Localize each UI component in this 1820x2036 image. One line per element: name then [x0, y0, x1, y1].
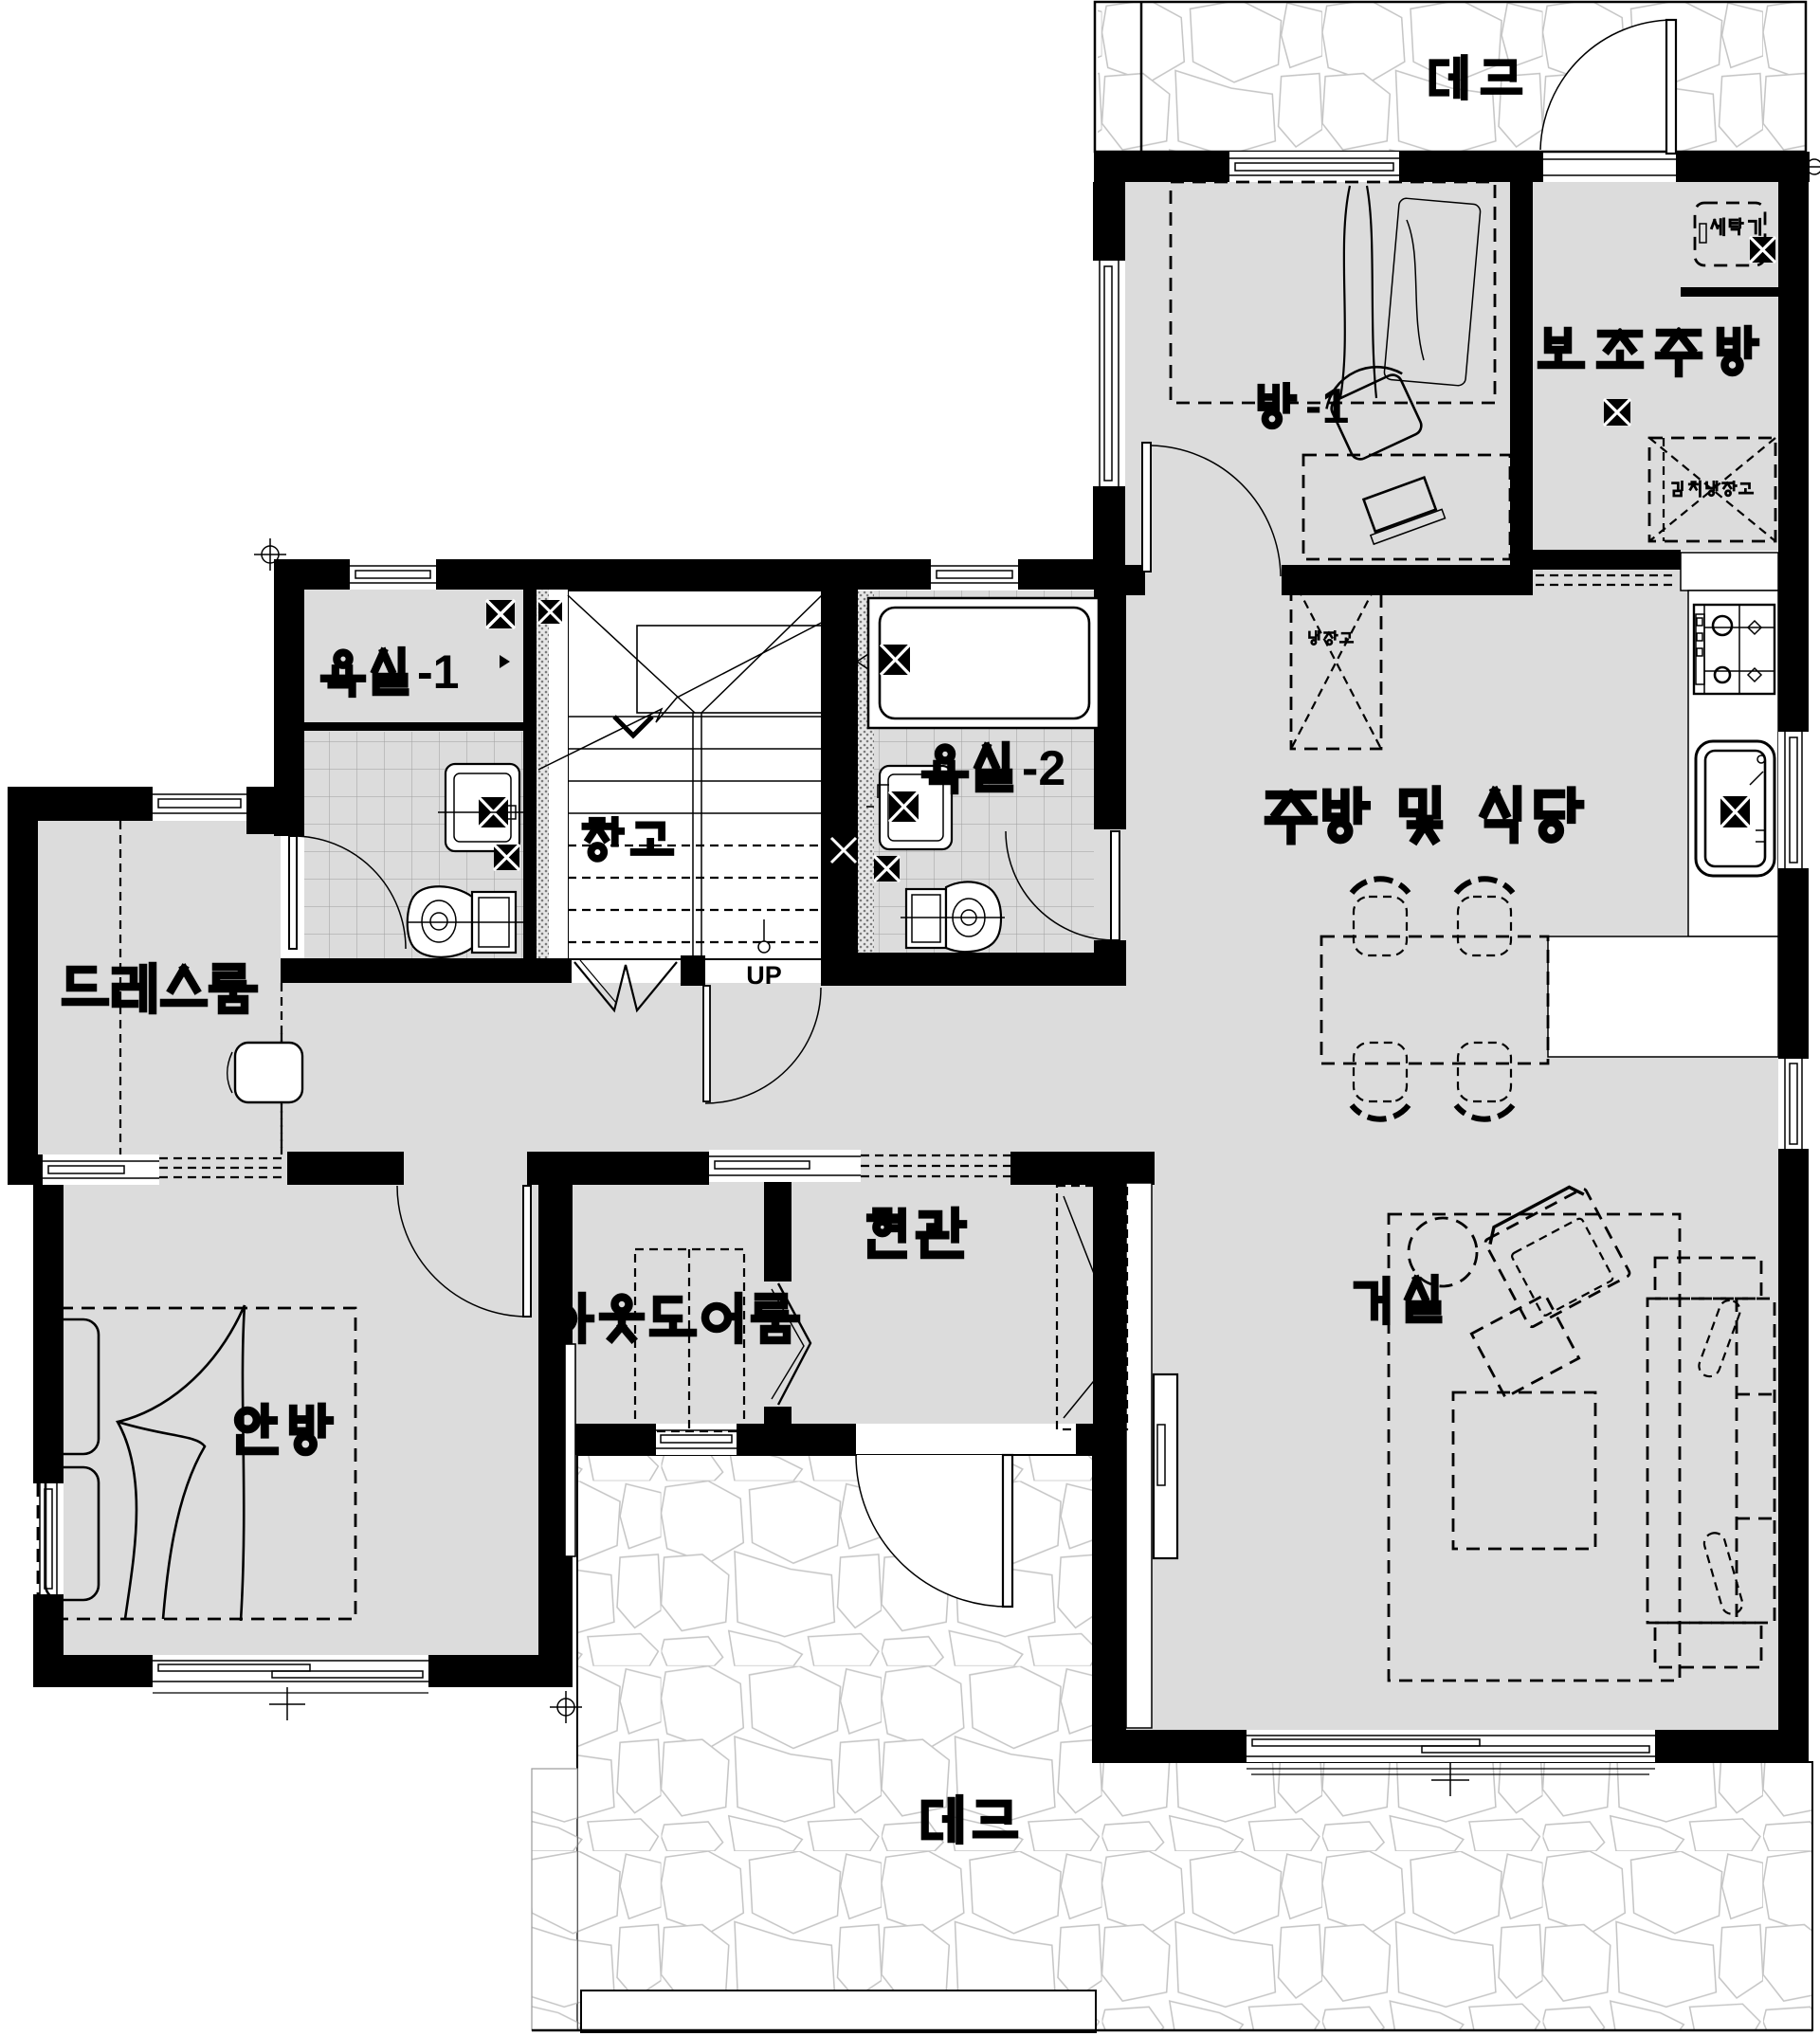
svg-text:-1: -1	[417, 645, 459, 699]
svg-text:-2: -2	[1022, 741, 1065, 796]
svg-text:UP: UP	[746, 961, 782, 990]
svg-text:-1: -1	[1305, 379, 1349, 434]
